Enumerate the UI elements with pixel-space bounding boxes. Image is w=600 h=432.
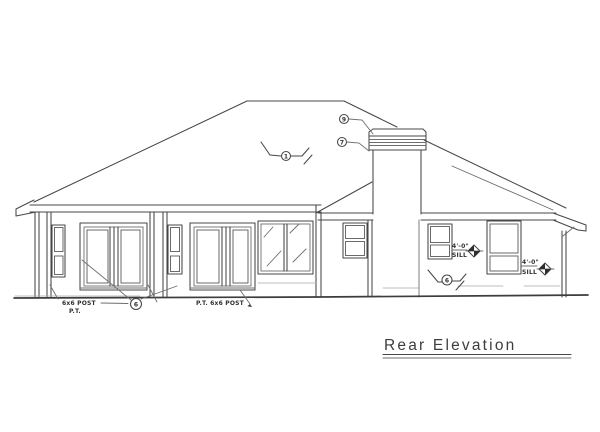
benchmark-symbol-2 [537, 263, 554, 275]
sill-1-label: SILL [452, 252, 467, 259]
wing-window-large [487, 221, 521, 274]
sill-1-value: 4'-0" [452, 243, 469, 250]
left-post-label: 6x6 POST [62, 300, 97, 307]
narrow-window-middle [168, 225, 182, 274]
left-post-sub-label: P.T. [69, 308, 81, 315]
chimney-callouts: 9 7 [338, 115, 374, 152]
main-eave-fascia [16, 200, 321, 216]
drawing-title: Rear Elevation [384, 337, 516, 354]
chimney-upper-callout-number: 9 [342, 116, 346, 123]
narrow-window-left [52, 225, 65, 277]
right-wing-roof [316, 166, 553, 213]
main-hip-roof [34, 101, 566, 208]
chimney-lower-callout-number: 7 [340, 139, 344, 146]
glass-reflection-marks [264, 224, 306, 266]
wing-callout-number: 6 [445, 277, 449, 284]
ground-line [14, 295, 588, 298]
sill-2-value: 4'-0" [522, 259, 539, 266]
leader-arrowhead [248, 304, 253, 307]
sliding-glass-door-left [80, 223, 147, 290]
post-annotation-right: P.T. 6x6 POST [196, 290, 252, 307]
right-post-label: P.T. 6x6 POST [196, 300, 245, 307]
picture-window [258, 221, 316, 283]
wing-window-small-left [343, 223, 367, 258]
rear-elevation-drawing: 1 9 7 6x6 POST P.T. 6 P.T. 6x6 POST 4'-0… [0, 0, 600, 432]
roof-keynote-callout: 1 [261, 142, 312, 164]
drawing-title-block: Rear Elevation [383, 337, 571, 358]
post-callout-number: 6 [134, 301, 138, 308]
sill-2-label: SILL [522, 269, 537, 276]
architectural-drawing-page: 1 9 7 6x6 POST P.T. 6 P.T. 6x6 POST 4'-0… [0, 0, 600, 432]
right-eave-overhang [553, 213, 586, 236]
sill-height-marker-1: 4'-0" SILL [452, 243, 483, 259]
chimney [369, 129, 426, 214]
wing-window-small-right [428, 224, 452, 259]
roof-callout-number: 1 [284, 153, 288, 160]
chimney-cap [369, 136, 426, 150]
sliding-glass-door-right [190, 223, 255, 290]
wing-eave-fascia [318, 213, 556, 220]
wing-keynote-callout: 6 [428, 270, 466, 290]
sill-height-marker-2: 4'-0" SILL [522, 259, 554, 276]
